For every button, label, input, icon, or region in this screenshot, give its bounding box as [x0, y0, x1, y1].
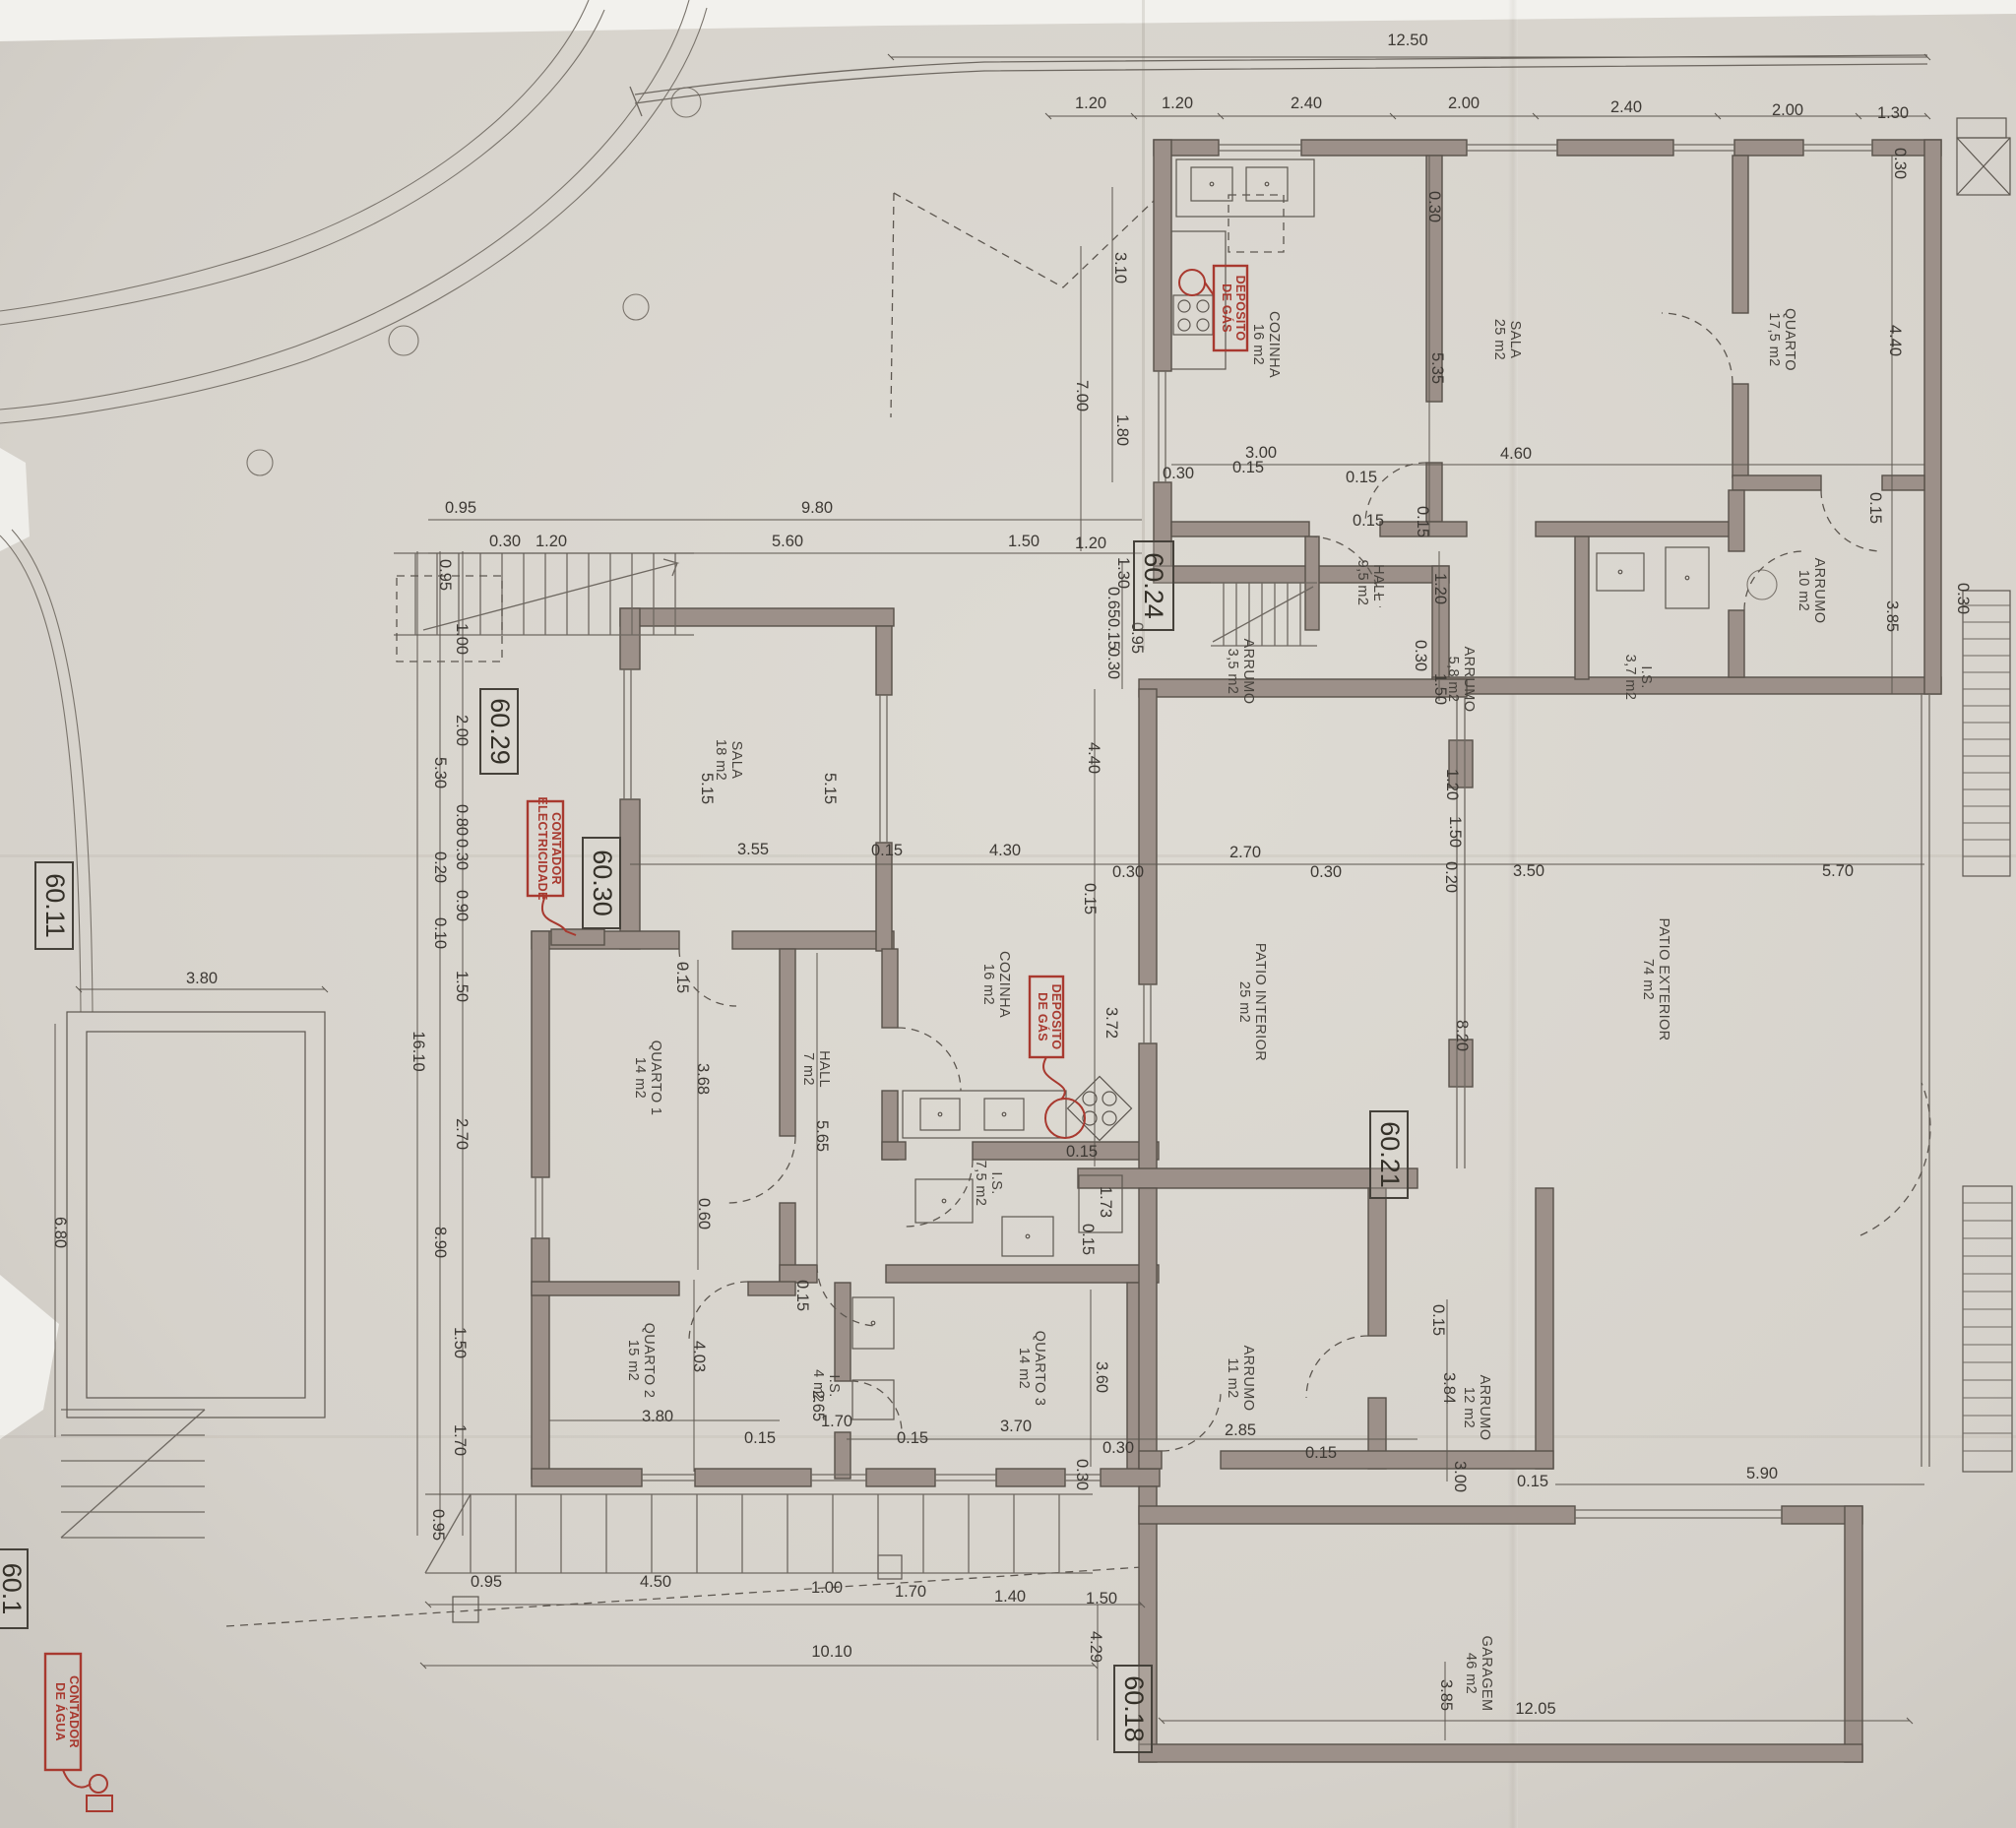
dimension-label: 0.15 — [1346, 469, 1377, 486]
dimension-label: 0.30 — [1112, 863, 1144, 881]
reference-marker: 60.29 — [485, 698, 515, 765]
dimension-label: 0.15 — [1414, 506, 1431, 537]
reference-marker: 60.24 — [1139, 552, 1168, 619]
dimension-label: 1.20 — [535, 533, 567, 550]
dimension-label: 2.00 — [1448, 95, 1480, 112]
dimension-label: 0.95 — [445, 499, 476, 517]
scanned-floor-plan: 12.501.201.202.402.002.402.001.300.303.1… — [0, 0, 2016, 1828]
dimension-label: 0.15 — [744, 1429, 776, 1447]
dimension-label: 1.20 — [1075, 95, 1106, 112]
dimension-label: 2.70 — [453, 1118, 471, 1150]
dimension-label: 4.50 — [640, 1573, 671, 1591]
dimension-label: 0.30 — [489, 533, 521, 550]
dimension-label: 5.30 — [431, 757, 449, 788]
dimension-label: 4.60 — [1500, 445, 1532, 463]
dimension-label: 3.80 — [642, 1408, 673, 1425]
dimension-label: 0.90 — [453, 890, 471, 921]
dimension-label: 3.85 — [1883, 600, 1901, 632]
dimension-label: 0.65 — [1104, 587, 1122, 618]
dimension-label: 4.40 — [1085, 742, 1102, 774]
dimension-label: 12.05 — [1515, 1700, 1555, 1718]
dimension-label: 3.68 — [694, 1063, 712, 1095]
reference-marker: 60.11 — [40, 873, 70, 938]
dimension-label: 3.00 — [1451, 1461, 1469, 1492]
dimension-label: 5.70 — [1822, 862, 1854, 880]
dimension-label: 5.60 — [772, 533, 803, 550]
dimension-label: 3.10 — [1111, 252, 1129, 284]
dimension-label: 2.70 — [1229, 844, 1261, 861]
dimension-label: 0.15 — [1866, 492, 1884, 524]
dimension-label: 1.00 — [453, 623, 471, 655]
dimension-label: 4.40 — [1886, 325, 1904, 356]
reference-marker: 60.18 — [1119, 1675, 1149, 1742]
dimension-label: 3.60 — [1093, 1361, 1110, 1393]
dimension-label: 1.00 — [811, 1579, 843, 1597]
dimension-label: 5.90 — [1746, 1465, 1778, 1482]
dimension-label: 0.30 — [1954, 583, 1972, 614]
paper-background — [0, 0, 2016, 1828]
dimension-label: 1.30 — [1877, 104, 1909, 122]
dimension-label: 0.15 — [871, 842, 903, 859]
dimension-label: 0.30 — [1412, 640, 1429, 671]
dimension-label: 0.30 — [1310, 863, 1342, 881]
dimension-label: 0.95 — [471, 1573, 502, 1591]
dimension-label: 3.70 — [1000, 1418, 1032, 1435]
dimension-label: 1.70 — [451, 1424, 469, 1456]
dimension-label: 2.40 — [1291, 95, 1322, 112]
dimension-label: 1.20 — [1075, 535, 1106, 552]
dimension-label: 1.30 — [1114, 557, 1132, 589]
dimension-label: 3.50 — [1513, 862, 1544, 880]
dimension-label: 0.95 — [436, 559, 454, 591]
dimension-label: 4.03 — [690, 1341, 708, 1372]
dimension-label: 3.72 — [1102, 1007, 1120, 1039]
dimension-label: 5.35 — [1428, 352, 1446, 384]
dimension-label: 1.73 — [1097, 1186, 1114, 1218]
dimension-label: 10.10 — [811, 1643, 851, 1661]
dimension-label: 0.15 — [673, 962, 691, 993]
room-label: SALA18 m2 — [713, 739, 744, 781]
dimension-label: 1.80 — [1113, 414, 1131, 446]
dimension-label: 3.00 — [1245, 444, 1277, 462]
electric-meter — [551, 929, 604, 945]
dimension-label: 0.15 — [1081, 883, 1099, 914]
dimension-label: 9.80 — [801, 499, 833, 517]
dimension-label: 0.30 — [1425, 191, 1443, 222]
room-label: SALA25 m2 — [1491, 319, 1523, 360]
reference-marker: 60.21 — [1375, 1121, 1405, 1188]
dimension-label: 1.50 — [1446, 816, 1464, 848]
dimension-label: 1.50 — [1086, 1590, 1117, 1607]
dimension-label: 0.30 — [1073, 1459, 1091, 1490]
dimension-label: 1.50 — [453, 971, 471, 1002]
dimension-label: 2.85 — [1225, 1421, 1256, 1439]
dimension-label: 3.84 — [1440, 1372, 1458, 1404]
room-label: HALL9,5 m2 — [1354, 560, 1386, 606]
dimension-label: 0.15 — [1079, 1224, 1097, 1255]
dimension-label: 0.20 — [431, 851, 449, 883]
dimension-label: 0.95 — [429, 1509, 447, 1541]
dimension-label: 3.85 — [1437, 1679, 1455, 1711]
red-annotation: CONTADORDE ÁGUA — [53, 1675, 81, 1748]
dimension-label: 2.00 — [453, 715, 471, 746]
dimension-label: 0.20 — [1442, 861, 1460, 893]
dimension-label: 1.20 — [1443, 769, 1461, 800]
dimension-label: 4.30 — [989, 842, 1021, 859]
dimension-label: 0.30 — [1104, 648, 1122, 679]
dimension-label: 0.10 — [431, 917, 449, 949]
dimension-label: 2.00 — [1772, 101, 1803, 119]
dimension-label: 3.55 — [737, 841, 769, 858]
dimension-label: 2.40 — [1610, 98, 1642, 116]
dimension-label: 1.40 — [994, 1588, 1026, 1606]
dimension-label: 0.15 — [897, 1429, 928, 1447]
red-annotation: DEPÓSITODE GÁS — [1220, 276, 1248, 342]
dimension-label: 1.50 — [451, 1327, 469, 1358]
dimension-label: 1.20 — [1162, 95, 1193, 112]
room-label: HALL7 m2 — [800, 1050, 832, 1088]
reference-marker: 60.1 — [0, 1563, 27, 1615]
dimension-label: 0.15 — [1066, 1143, 1098, 1161]
room-label: QUARTO17,5 m2 — [1766, 308, 1797, 371]
dimension-label: 7.00 — [1073, 380, 1091, 411]
dimension-label: 1.50 — [1008, 533, 1039, 550]
dimension-label: 0.30 — [1102, 1439, 1134, 1457]
dimension-label: 8.20 — [1453, 1020, 1471, 1051]
dimension-label: 12.50 — [1387, 32, 1427, 49]
dimension-label: 4.29 — [1087, 1631, 1104, 1663]
reference-marker: 60.30 — [588, 850, 617, 916]
dimension-label: 5.65 — [813, 1120, 831, 1152]
dimension-label: 5.15 — [821, 773, 839, 804]
dimension-label: 0.30 — [1163, 465, 1194, 482]
dimension-label: 6.80 — [51, 1217, 69, 1248]
dimension-label: 0.15 — [1353, 512, 1384, 530]
dimension-label: 0.15 — [1305, 1444, 1337, 1462]
dimension-label: 0.60 — [695, 1198, 713, 1229]
red-annotation: DEPÓSITODE GÁS — [1036, 984, 1064, 1050]
dimension-label: 3.80 — [186, 970, 218, 987]
dimension-label: 0.30 — [1891, 148, 1909, 179]
dimension-label: 0.15 — [1517, 1473, 1548, 1490]
dimension-label: 1.20 — [1431, 573, 1449, 604]
dimension-label: 1.70 — [895, 1583, 926, 1601]
red-annotation: CONTADORELECTRICIDADE — [535, 796, 563, 900]
dimension-label: 16.10 — [409, 1031, 427, 1071]
dimension-label: 0.15 — [793, 1280, 811, 1311]
dimension-label: 0.15 — [1104, 618, 1122, 650]
dimension-label: 0.80 — [453, 804, 471, 836]
dimension-label: 8.90 — [431, 1227, 449, 1258]
dimension-label: 0.15 — [1429, 1304, 1447, 1336]
dimension-label: 1.70 — [821, 1413, 852, 1430]
dimension-label: 0.30 — [453, 839, 471, 870]
